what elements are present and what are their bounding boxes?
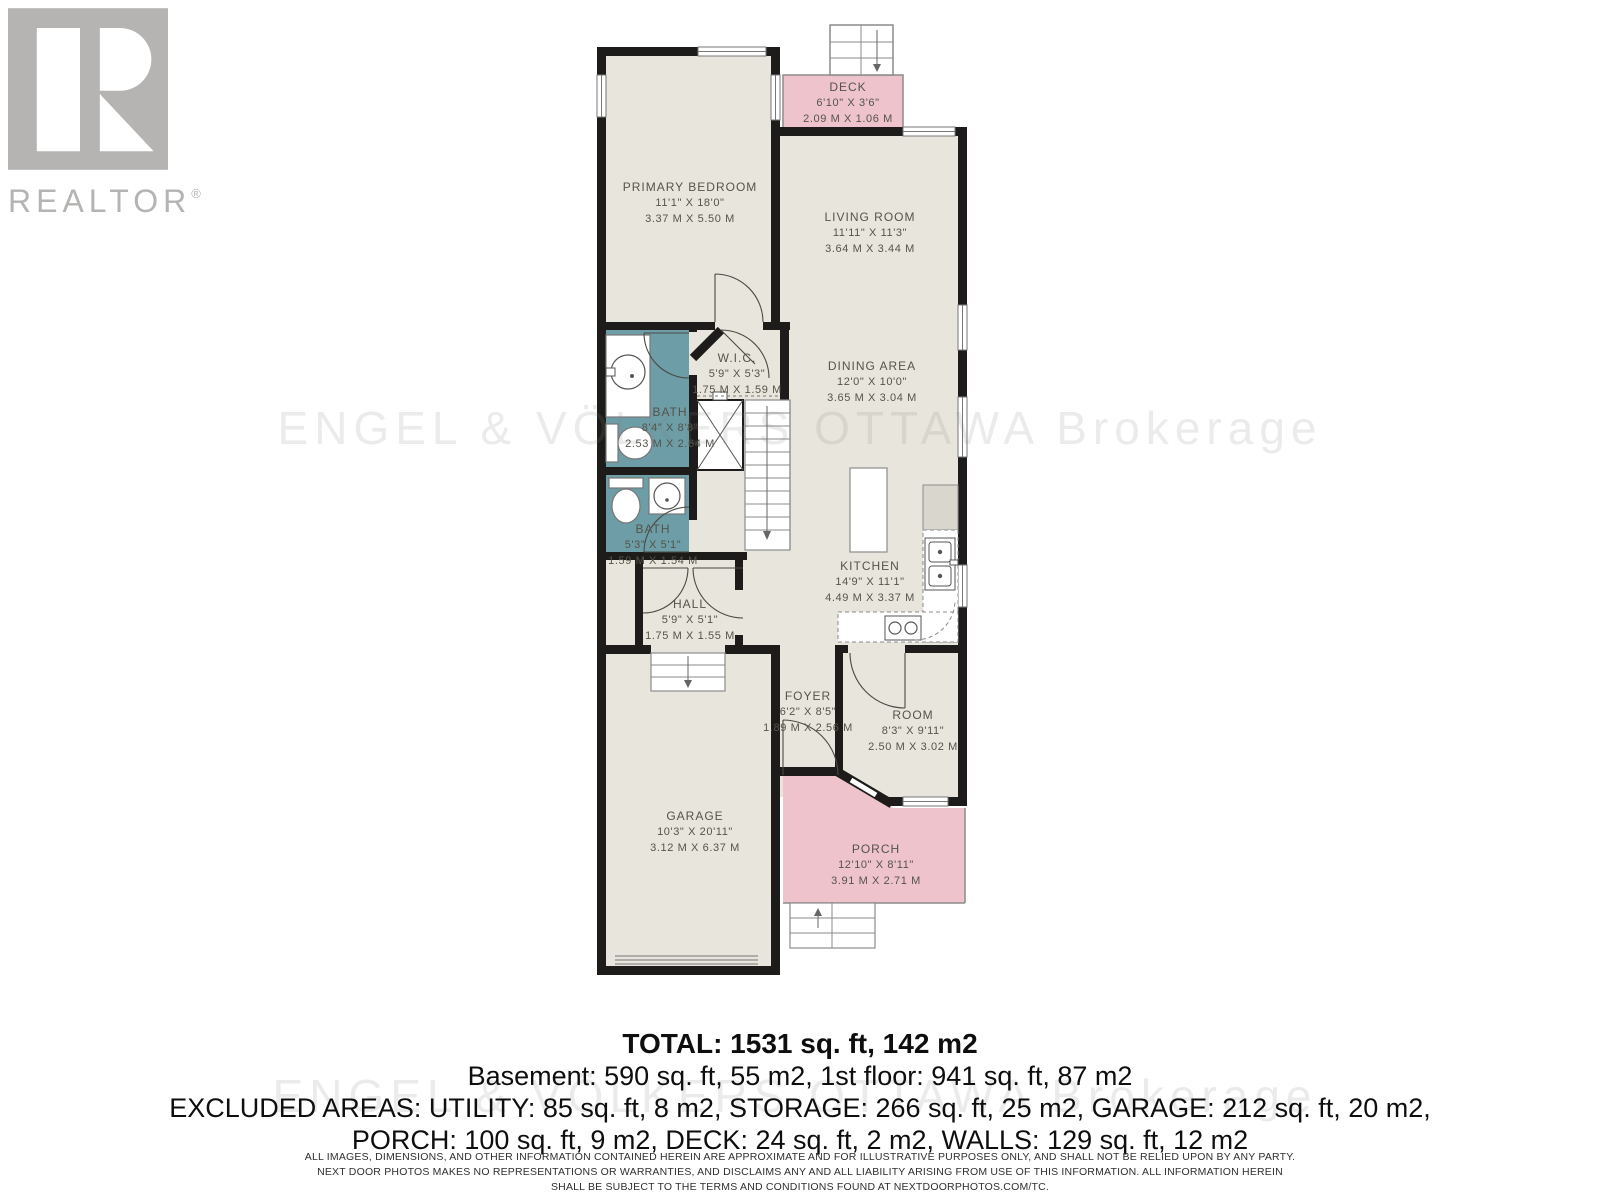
- registered-mark: ®: [191, 186, 201, 201]
- realtor-wordmark: REALTOR®: [8, 183, 188, 220]
- floors-area-line: Basement: 590 sq. ft, 55 m2, 1st floor: …: [0, 1060, 1600, 1092]
- room-label-bath-main: BATH 8'4" X 8'8" 2.53 M X 2.64 M: [625, 404, 715, 452]
- room-label-kitchen: KITCHEN 14'9" X 11'1" 4.49 M X 3.37 M: [825, 558, 915, 606]
- room-label-garage: GARAGE 10'3" X 20'11" 3.12 M X 6.37 M: [650, 808, 740, 856]
- sink-icon: [611, 355, 645, 389]
- room-label-dining-area: DINING AREA 12'0" X 10'0" 3.65 M X 3.04 …: [827, 358, 917, 406]
- disclaimer-line-1: ALL IMAGES, DIMENSIONS, AND OTHER INFORM…: [0, 1150, 1600, 1165]
- disclaimer-line-2: NEXT DOOR PHOTOS MAKES NO REPRESENTATION…: [0, 1165, 1600, 1180]
- logo-r-stem: [37, 28, 80, 151]
- room-label-deck: DECK 6'10" X 3'6" 2.09 M X 1.06 M: [803, 79, 893, 127]
- kitchen-island: [850, 468, 887, 552]
- total-area-line: TOTAL: 1531 sq. ft, 142 m2: [0, 1028, 1600, 1060]
- realtor-r-icon: [8, 8, 168, 170]
- fridge: [923, 485, 958, 530]
- room-label-foyer: FOYER 6'2" X 8'5" 1.89 M X 2.56 M: [763, 688, 853, 736]
- disclaimer: ALL IMAGES, DIMENSIONS, AND OTHER INFORM…: [0, 1150, 1600, 1195]
- sink-icon: [654, 483, 680, 509]
- garage-steps: [651, 653, 725, 691]
- watermark-text: ENGEL & VÖLKERS OTTAWA Brokerage: [278, 401, 1323, 455]
- area-summary: TOTAL: 1531 sq. ft, 142 m2 Basement: 590…: [0, 1028, 1600, 1156]
- room-label-primary-bedroom: PRIMARY BEDROOM 11'1" X 18'0" 3.37 M X 5…: [623, 179, 758, 227]
- room-label-porch: PORCH 12'10" X 8'11" 3.91 M X 2.71 M: [831, 841, 921, 889]
- room-label-wic: W.I.C. 5'9" X 5'3" 1.75 M X 1.59 M: [692, 350, 782, 398]
- room-label-hall: HALL 5'9" X 5'1" 1.75 M X 1.55 M: [645, 596, 735, 644]
- room-label-bath-small: BATH 5'3" X 5'1" 1.59 M X 1.54 M: [608, 521, 698, 569]
- toilet-tank: [609, 478, 643, 488]
- cooktop: [885, 616, 921, 640]
- room-label-room: ROOM 8'3" X 9'11" 2.50 M X 3.02 M: [868, 707, 958, 755]
- excluded-area-line-1: EXCLUDED AREAS: UTILITY: 85 sq. ft, 8 m2…: [0, 1092, 1600, 1124]
- disclaimer-line-3: SHALL BE SUBJECT TO THE TERMS AND CONDIT…: [0, 1180, 1600, 1195]
- room-label-living-room: LIVING ROOM 11'11" X 11'3" 3.64 M X 3.44…: [824, 209, 915, 257]
- toilet-icon: [612, 489, 640, 523]
- realtor-logo: REALTOR®: [8, 8, 188, 220]
